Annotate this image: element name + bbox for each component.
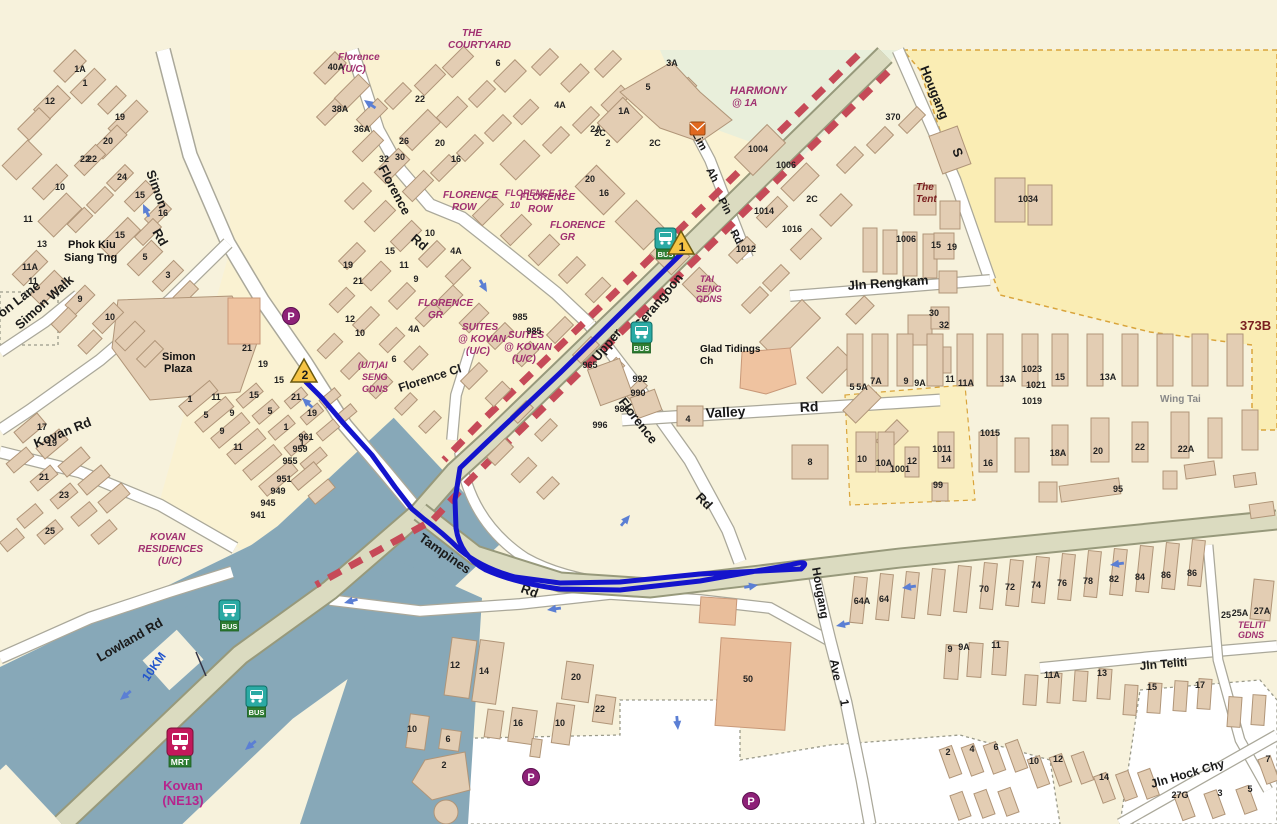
svg-text:9A: 9A [914, 378, 926, 388]
svg-text:3A: 3A [666, 58, 678, 68]
svg-text:22A: 22A [1178, 444, 1195, 454]
svg-text:FLORENCE: FLORENCE [550, 220, 605, 231]
svg-text:GDNS: GDNS [362, 384, 388, 394]
svg-text:Phok Kiu: Phok Kiu [68, 239, 116, 251]
svg-text:(U/C): (U/C) [158, 556, 183, 567]
svg-text:1012: 1012 [736, 244, 756, 254]
svg-text:10: 10 [555, 718, 565, 728]
svg-text:20: 20 [103, 136, 113, 146]
svg-text:10A: 10A [876, 458, 893, 468]
svg-text:11A: 11A [1044, 670, 1061, 680]
svg-text:2: 2 [605, 138, 610, 148]
svg-text:15: 15 [274, 375, 284, 385]
svg-text:14: 14 [1099, 772, 1109, 782]
svg-text:SUITES: SUITES [462, 322, 498, 333]
svg-text:4A: 4A [554, 100, 566, 110]
svg-text:11: 11 [23, 214, 33, 224]
svg-text:5: 5 [849, 382, 854, 392]
svg-text:1A: 1A [74, 64, 86, 74]
svg-text:15: 15 [1055, 372, 1065, 382]
svg-text:9: 9 [903, 376, 908, 386]
svg-text:12: 12 [450, 660, 460, 670]
svg-text:THE: THE [462, 28, 482, 39]
svg-text:951: 951 [276, 474, 291, 484]
svg-text:9: 9 [229, 408, 234, 418]
svg-text:10: 10 [355, 328, 365, 338]
svg-text:7: 7 [1265, 754, 1270, 764]
svg-text:24: 24 [117, 172, 127, 182]
svg-text:1: 1 [679, 240, 686, 254]
svg-text:1019: 1019 [1022, 396, 1042, 406]
svg-text:Kovan: Kovan [163, 778, 203, 793]
svg-text:SENG: SENG [696, 284, 722, 294]
svg-text:945: 945 [260, 498, 275, 508]
svg-text:64: 64 [879, 594, 889, 604]
svg-text:82: 82 [1109, 574, 1119, 584]
svg-text:13A: 13A [1100, 372, 1117, 382]
svg-text:13: 13 [37, 239, 47, 249]
svg-text:72: 72 [1005, 582, 1015, 592]
svg-text:20: 20 [571, 672, 581, 682]
svg-text:12: 12 [45, 96, 55, 106]
svg-text:30: 30 [929, 308, 939, 318]
svg-text:GDNS: GDNS [696, 294, 722, 304]
svg-text:2C: 2C [806, 194, 818, 204]
svg-text:16: 16 [513, 718, 523, 728]
svg-text:11A: 11A [958, 378, 975, 388]
svg-text:15: 15 [385, 246, 395, 256]
svg-text:6: 6 [445, 734, 450, 744]
svg-text:22: 22 [1135, 442, 1145, 452]
svg-text:2C: 2C [594, 128, 606, 138]
svg-text:COURTYARD: COURTYARD [448, 40, 511, 51]
svg-text:961: 961 [298, 432, 313, 442]
svg-text:23: 23 [59, 490, 69, 500]
svg-text:(U/C): (U/C) [466, 346, 491, 357]
svg-text:10: 10 [425, 228, 435, 238]
svg-text:1004: 1004 [748, 144, 768, 154]
svg-text:17: 17 [37, 422, 47, 432]
svg-text:11: 11 [991, 640, 1001, 650]
svg-text:15: 15 [931, 240, 941, 250]
svg-text:FLORENCE: FLORENCE [418, 298, 473, 309]
svg-text:985: 985 [526, 326, 541, 336]
svg-text:8: 8 [807, 457, 812, 467]
svg-text:373B: 373B [1240, 318, 1271, 333]
svg-text:996: 996 [592, 420, 607, 430]
svg-text:26: 26 [399, 136, 409, 146]
svg-text:@ 1A: @ 1A [732, 98, 757, 109]
svg-text:5A: 5A [856, 382, 868, 392]
svg-text:9A: 9A [958, 642, 970, 652]
svg-text:11: 11 [28, 276, 38, 286]
svg-text:949: 949 [270, 486, 285, 496]
svg-text:78: 78 [1083, 576, 1093, 586]
svg-text:21: 21 [242, 343, 252, 353]
svg-text:1: 1 [187, 394, 192, 404]
svg-text:MRT: MRT [171, 757, 190, 767]
svg-text:5: 5 [1247, 784, 1252, 794]
svg-text:1006: 1006 [776, 160, 796, 170]
svg-text:6: 6 [993, 742, 998, 752]
svg-text:20: 20 [1093, 446, 1103, 456]
svg-text:FLORENCE: FLORENCE [443, 190, 498, 201]
svg-text:1023: 1023 [1022, 364, 1042, 374]
svg-text:370: 370 [885, 112, 900, 122]
svg-text:15: 15 [249, 390, 259, 400]
svg-text:11: 11 [233, 442, 243, 452]
svg-text:10: 10 [857, 454, 867, 464]
svg-text:32: 32 [379, 154, 389, 164]
svg-text:10: 10 [55, 182, 65, 192]
svg-text:9: 9 [413, 274, 418, 284]
svg-text:4: 4 [685, 414, 690, 424]
svg-text:20: 20 [585, 174, 595, 184]
svg-text:30: 30 [395, 152, 405, 162]
svg-text:9: 9 [219, 426, 224, 436]
svg-text:86: 86 [1187, 568, 1197, 578]
svg-text:TELITI: TELITI [1238, 620, 1266, 630]
svg-text:P: P [287, 311, 294, 323]
svg-text:25A: 25A [1232, 608, 1249, 618]
svg-text:11: 11 [945, 374, 955, 384]
svg-text:SENG: SENG [362, 372, 388, 382]
svg-text:21: 21 [291, 392, 301, 402]
svg-text:12: 12 [907, 456, 917, 466]
svg-text:959: 959 [292, 444, 307, 454]
svg-text:22: 22 [80, 154, 90, 164]
svg-text:19: 19 [47, 438, 57, 448]
svg-text:1015: 1015 [980, 428, 1000, 438]
svg-text:992: 992 [632, 374, 647, 384]
svg-text:12: 12 [345, 314, 355, 324]
svg-text:4A: 4A [408, 324, 420, 334]
svg-text:5: 5 [645, 82, 650, 92]
svg-text:1A: 1A [618, 106, 630, 116]
svg-text:Simon: Simon [162, 351, 196, 363]
svg-text:19: 19 [307, 408, 317, 418]
svg-text:10: 10 [105, 312, 115, 322]
svg-text:22: 22 [415, 94, 425, 104]
svg-text:955: 955 [282, 456, 297, 466]
svg-text:1034: 1034 [1018, 194, 1038, 204]
svg-text:19: 19 [115, 112, 125, 122]
svg-text:ROW: ROW [528, 204, 554, 215]
svg-text:(U/T)AI: (U/T)AI [358, 360, 388, 370]
svg-text:BUS: BUS [634, 344, 650, 353]
svg-text:20: 20 [435, 138, 445, 148]
svg-text:4A: 4A [450, 246, 462, 256]
svg-text:13: 13 [1097, 668, 1107, 678]
svg-text:@ KOVAN: @ KOVAN [504, 342, 553, 353]
svg-text:1006: 1006 [896, 234, 916, 244]
svg-text:19: 19 [343, 260, 353, 270]
svg-text:14: 14 [479, 666, 489, 676]
svg-text:14: 14 [941, 454, 951, 464]
svg-text:TAI: TAI [700, 274, 714, 284]
svg-text:5: 5 [142, 252, 147, 262]
svg-text:(U/C): (U/C) [512, 354, 537, 365]
svg-text:11: 11 [399, 260, 409, 270]
svg-text:Glad Tidings: Glad Tidings [700, 344, 761, 355]
svg-text:985: 985 [512, 312, 527, 322]
svg-text:74: 74 [1031, 580, 1041, 590]
svg-text:BUS: BUS [222, 622, 238, 631]
svg-text:95: 95 [1113, 484, 1123, 494]
svg-text:9: 9 [947, 644, 952, 654]
svg-text:32: 32 [939, 320, 949, 330]
svg-text:21: 21 [39, 472, 49, 482]
svg-text:16: 16 [158, 208, 168, 218]
svg-text:Valley: Valley [705, 403, 746, 421]
svg-text:84: 84 [1135, 572, 1145, 582]
svg-text:17: 17 [1195, 680, 1205, 690]
svg-text:16: 16 [451, 154, 461, 164]
svg-text:5: 5 [203, 410, 208, 420]
svg-text:11: 11 [211, 392, 221, 402]
svg-text:15: 15 [1147, 682, 1157, 692]
svg-text:1016: 1016 [782, 224, 802, 234]
svg-text:GR: GR [428, 310, 444, 321]
svg-text:Wing Tai: Wing Tai [1160, 394, 1201, 405]
svg-text:990: 990 [630, 388, 645, 398]
svg-text:10: 10 [407, 724, 417, 734]
svg-text:Plaza: Plaza [164, 363, 193, 375]
svg-text:The: The [916, 182, 934, 193]
svg-text:1021: 1021 [1026, 380, 1046, 390]
svg-text:38A: 38A [332, 104, 349, 114]
svg-text:99: 99 [933, 480, 943, 490]
svg-text:21: 21 [353, 276, 363, 286]
svg-text:76: 76 [1057, 578, 1067, 588]
svg-text:11A: 11A [22, 262, 39, 272]
svg-text:FLORENCE: FLORENCE [520, 192, 575, 203]
svg-text:BUS: BUS [249, 708, 265, 717]
svg-text:19: 19 [947, 242, 957, 252]
svg-text:2: 2 [441, 760, 446, 770]
svg-text:18A: 18A [1050, 448, 1067, 458]
svg-text:GDNS: GDNS [1238, 630, 1264, 640]
svg-text:2C: 2C [649, 138, 661, 148]
svg-text:40A: 40A [328, 62, 345, 72]
svg-text:2: 2 [945, 747, 950, 757]
svg-text:RESIDENCES: RESIDENCES [138, 544, 203, 555]
svg-text:Siang Tng: Siang Tng [64, 252, 117, 264]
svg-text:3: 3 [1217, 788, 1222, 798]
svg-text:15: 15 [135, 190, 145, 200]
svg-text:@ KOVAN: @ KOVAN [458, 334, 507, 345]
svg-text:6: 6 [495, 58, 500, 68]
svg-text:64A: 64A [854, 596, 871, 606]
svg-text:10: 10 [1029, 756, 1039, 766]
svg-text:Rd: Rd [799, 398, 818, 415]
svg-text:36A: 36A [354, 124, 371, 134]
svg-text:ROW: ROW [452, 202, 478, 213]
svg-text:27A: 27A [1254, 606, 1271, 616]
svg-text:P: P [527, 772, 534, 784]
svg-text:3: 3 [165, 270, 170, 280]
svg-text:Florence: Florence [338, 52, 380, 63]
svg-text:6: 6 [391, 354, 396, 364]
svg-text:13A: 13A [1000, 374, 1017, 384]
svg-text:(NE13): (NE13) [162, 793, 203, 808]
svg-text:986: 986 [614, 404, 629, 414]
svg-text:15: 15 [115, 230, 125, 240]
svg-text:965: 965 [582, 360, 597, 370]
svg-text:70: 70 [979, 584, 989, 594]
svg-text:1014: 1014 [754, 206, 774, 216]
svg-text:Ch: Ch [700, 356, 713, 367]
svg-text:25: 25 [1221, 610, 1231, 620]
svg-text:P: P [747, 796, 754, 808]
svg-text:22: 22 [595, 704, 605, 714]
svg-text:25: 25 [45, 526, 55, 536]
svg-text:16: 16 [599, 188, 609, 198]
svg-text:941: 941 [250, 510, 265, 520]
svg-text:GR: GR [560, 232, 576, 243]
svg-text:50: 50 [743, 674, 753, 684]
svg-text:7A: 7A [870, 376, 882, 386]
svg-text:9: 9 [77, 294, 82, 304]
svg-text:16: 16 [983, 458, 993, 468]
svg-text:5: 5 [267, 406, 272, 416]
svg-text:12: 12 [1053, 754, 1063, 764]
svg-text:4: 4 [969, 744, 974, 754]
svg-text:2: 2 [302, 368, 309, 382]
svg-text:KOVAN: KOVAN [150, 532, 186, 543]
svg-text:(U/C): (U/C) [342, 64, 367, 75]
svg-text:27G: 27G [1171, 790, 1188, 800]
svg-text:HARMONY: HARMONY [730, 85, 788, 97]
svg-text:Tent: Tent [916, 194, 937, 205]
svg-text:10: 10 [510, 200, 520, 210]
svg-text:86: 86 [1161, 570, 1171, 580]
svg-text:1011: 1011 [932, 444, 952, 454]
svg-text:19: 19 [258, 359, 268, 369]
svg-text:1: 1 [82, 78, 87, 88]
svg-text:1: 1 [283, 422, 288, 432]
